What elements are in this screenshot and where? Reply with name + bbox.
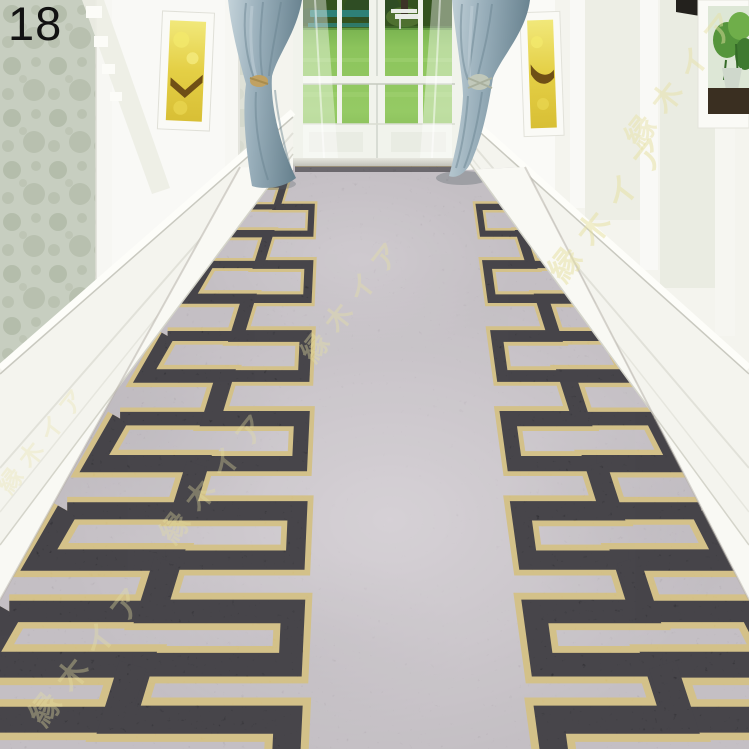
french-door-window [290, 0, 466, 166]
garden-chair [391, 9, 417, 13]
pane-divider-right [418, 0, 423, 124]
left-wall-picture [157, 11, 214, 131]
scene-canvas [0, 0, 749, 749]
corner-number-label: 18 [8, 0, 62, 50]
right-wall-panel [585, 0, 640, 220]
door-threshold [290, 158, 466, 166]
hallway-runner-rug-photo: 18 縁木イア 縁木イア 縁木イア 縁木イア 縁木イア 縁木イア [0, 0, 749, 749]
plant-picture [698, 0, 749, 128]
pane-divider-left [337, 0, 342, 124]
right-wall-picture [520, 11, 564, 136]
